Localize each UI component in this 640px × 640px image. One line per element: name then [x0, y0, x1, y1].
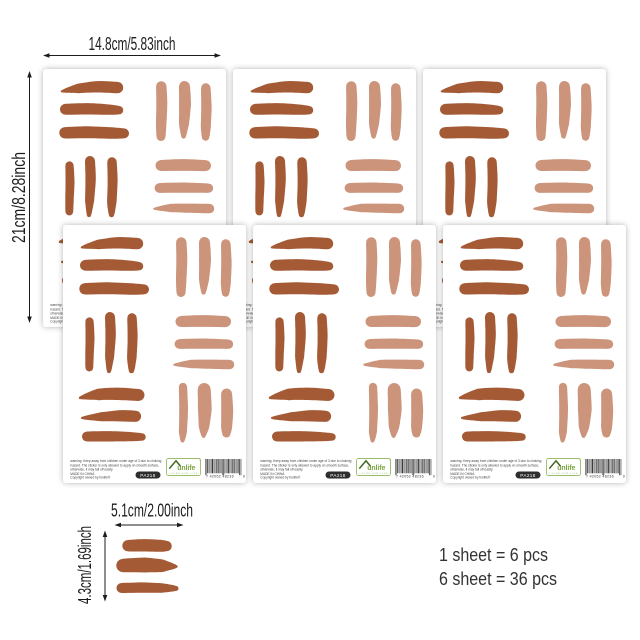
svg-text:14.8cm/5.83inch: 14.8cm/5.83inch	[89, 34, 176, 54]
svg-text:1 sheet = 6 pcs: 1 sheet = 6 pcs	[439, 545, 548, 565]
svg-text:6 sheet = 36 pcs: 6 sheet = 36 pcs	[439, 569, 557, 589]
svg-text:5.1cm/2.00inch: 5.1cm/2.00inch	[111, 501, 193, 521]
svg-text:21cm/8.28inch: 21cm/8.28inch	[9, 152, 29, 243]
svg-text:4.3cm/1.69inch: 4.3cm/1.69inch	[75, 526, 95, 604]
